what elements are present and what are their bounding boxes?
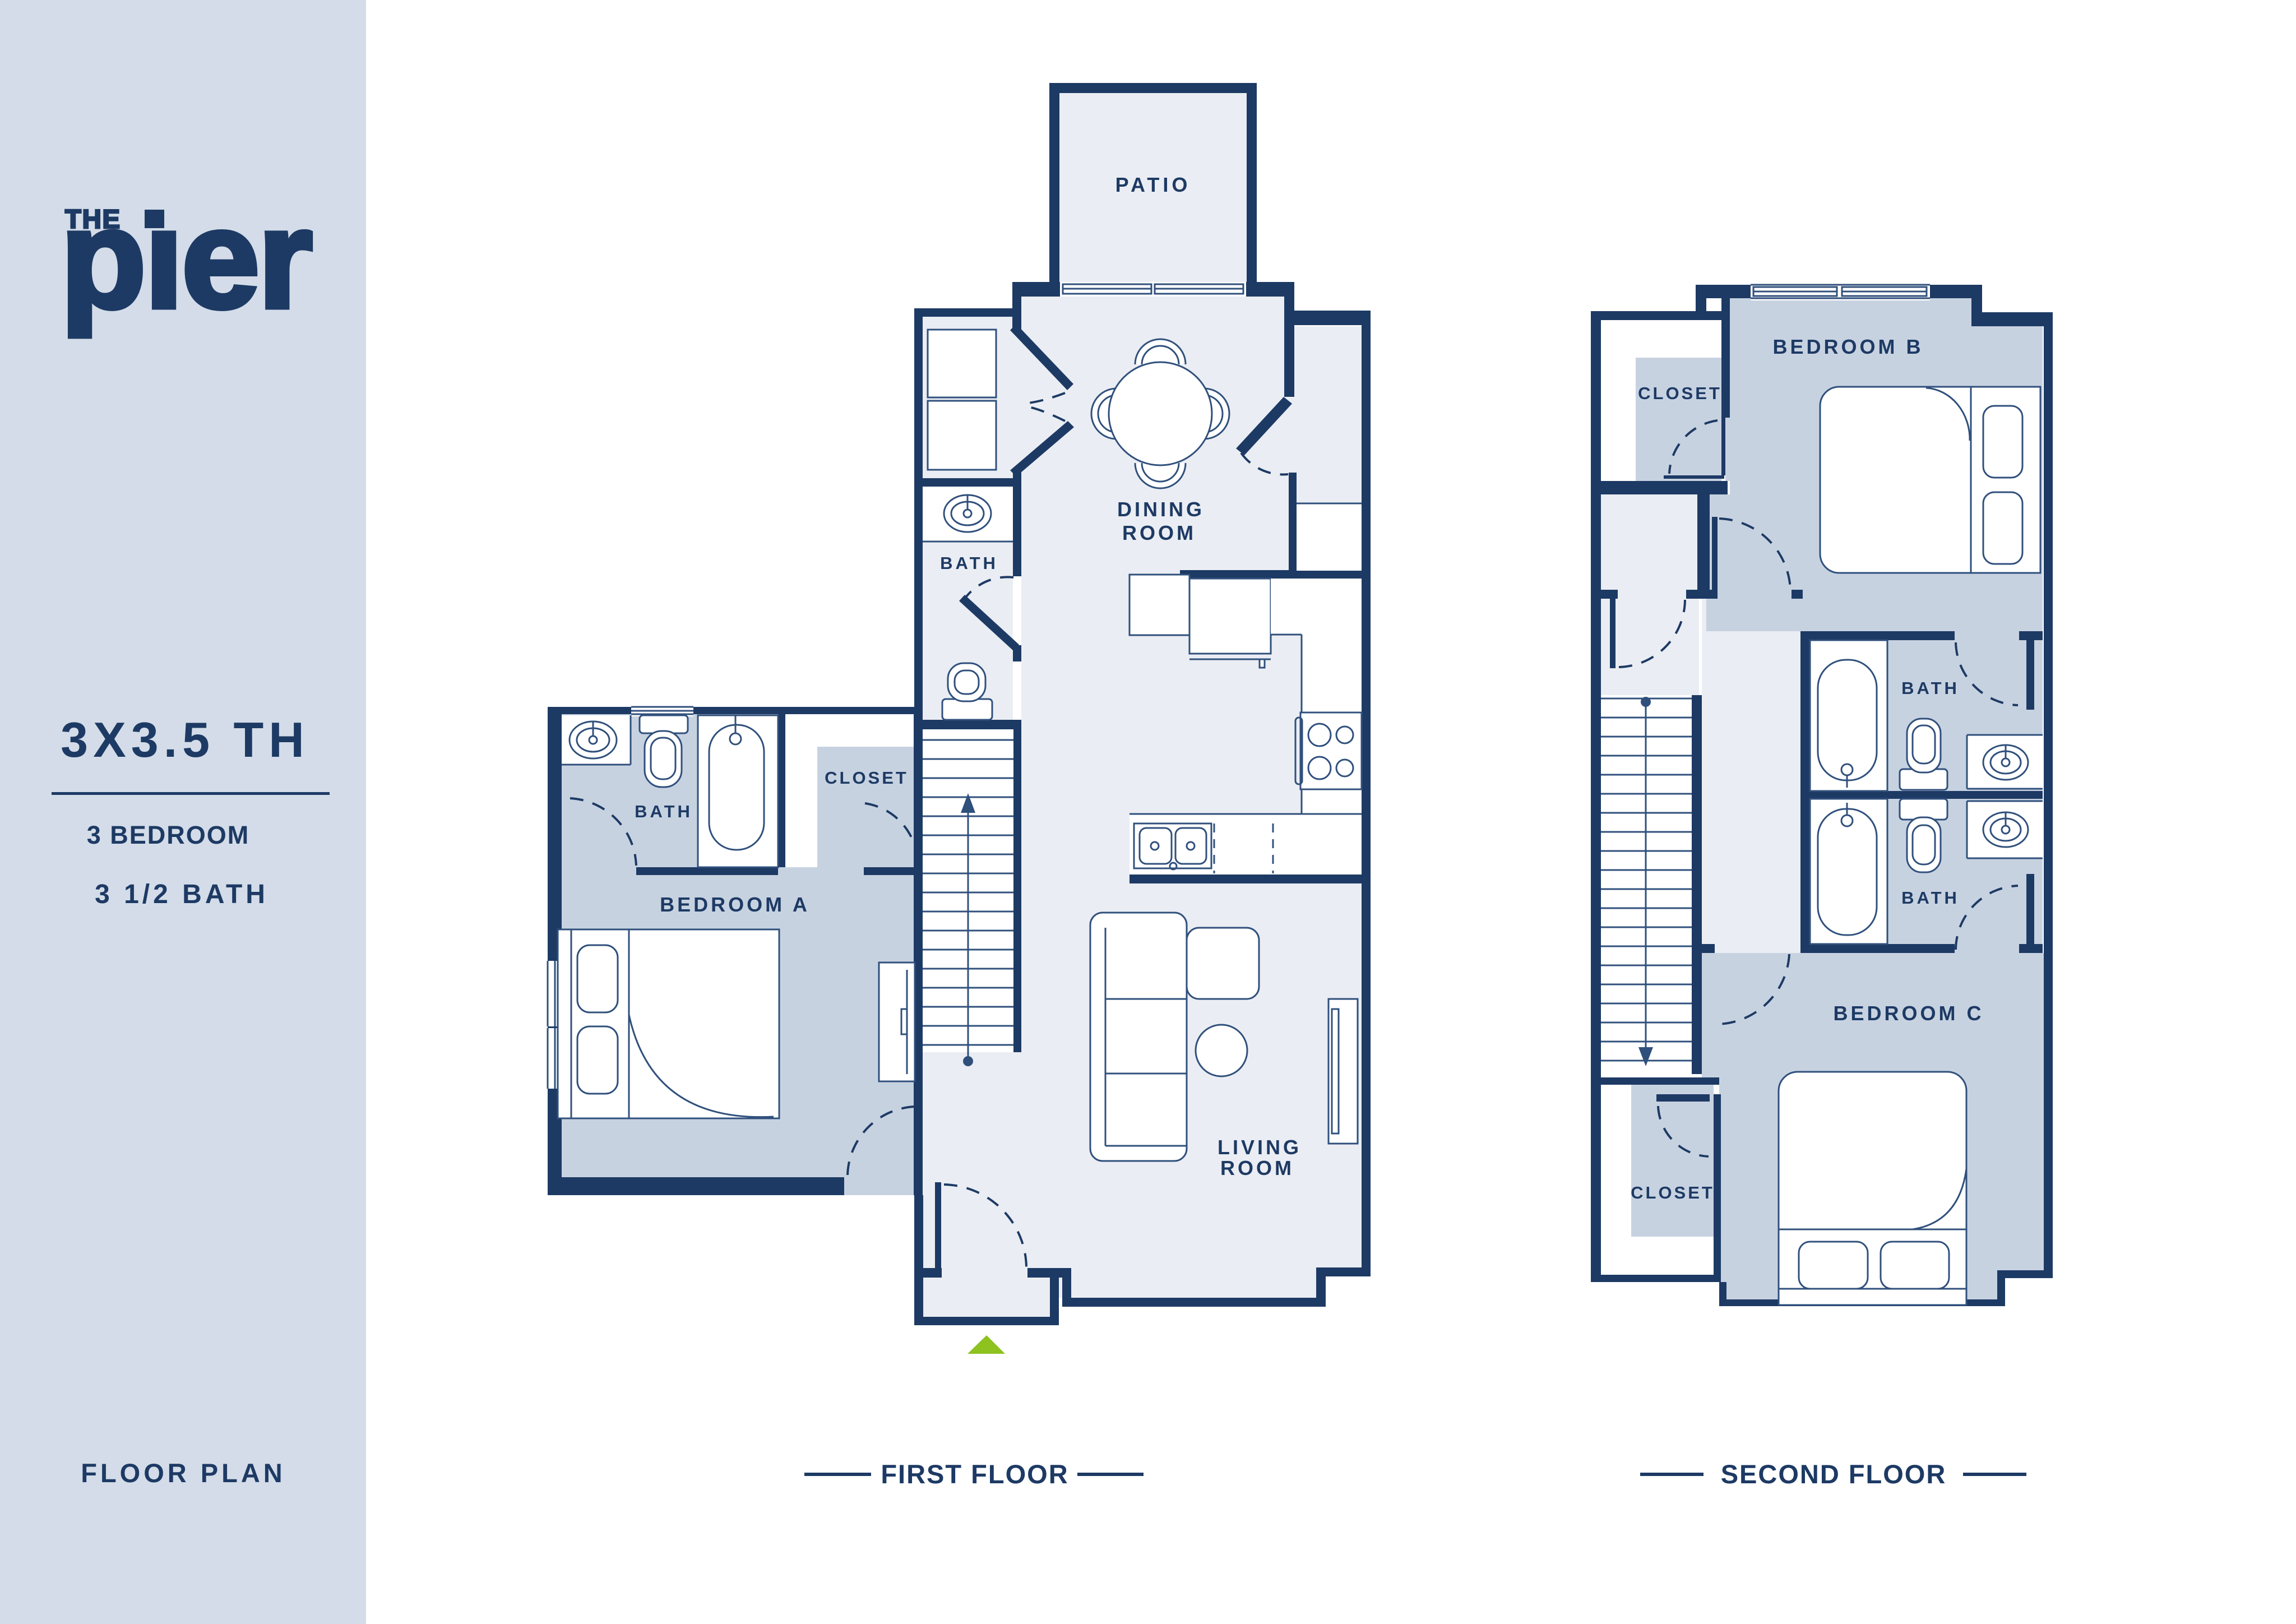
- svg-text:3X3.5 TH: 3X3.5 TH: [61, 712, 309, 767]
- svg-text:CLOSET: CLOSET: [1638, 383, 1722, 403]
- svg-text:ROOM: ROOM: [1122, 521, 1196, 544]
- svg-text:CLOSET: CLOSET: [1631, 1183, 1715, 1202]
- svg-text:BEDROOM C: BEDROOM C: [1834, 1002, 1984, 1025]
- svg-text:BEDROOM B: BEDROOM B: [1773, 335, 1924, 358]
- svg-text:CLOSET: CLOSET: [825, 768, 909, 788]
- svg-text:ROOM: ROOM: [1220, 1156, 1294, 1179]
- svg-text:FIRST FLOOR: FIRST FLOOR: [881, 1459, 1068, 1489]
- svg-text:3 1/2 BATH: 3 1/2 BATH: [95, 880, 269, 909]
- svg-text:SECOND FLOOR: SECOND FLOOR: [1721, 1459, 1947, 1489]
- svg-text:DINING: DINING: [1117, 498, 1205, 521]
- svg-text:BATH: BATH: [1901, 888, 1960, 908]
- svg-text:BATH: BATH: [940, 553, 998, 573]
- svg-text:BEDROOM A: BEDROOM A: [660, 893, 810, 916]
- svg-text:3 BEDROOM: 3 BEDROOM: [87, 821, 250, 849]
- svg-text:BATH: BATH: [1901, 678, 1960, 698]
- svg-text:BATH: BATH: [635, 802, 693, 821]
- svg-text:PATIO: PATIO: [1115, 173, 1191, 196]
- svg-text:FLOOR PLAN: FLOOR PLAN: [81, 1458, 285, 1488]
- svg-text:LIVING: LIVING: [1218, 1136, 1302, 1159]
- svg-text:pıer: pıer: [61, 181, 311, 337]
